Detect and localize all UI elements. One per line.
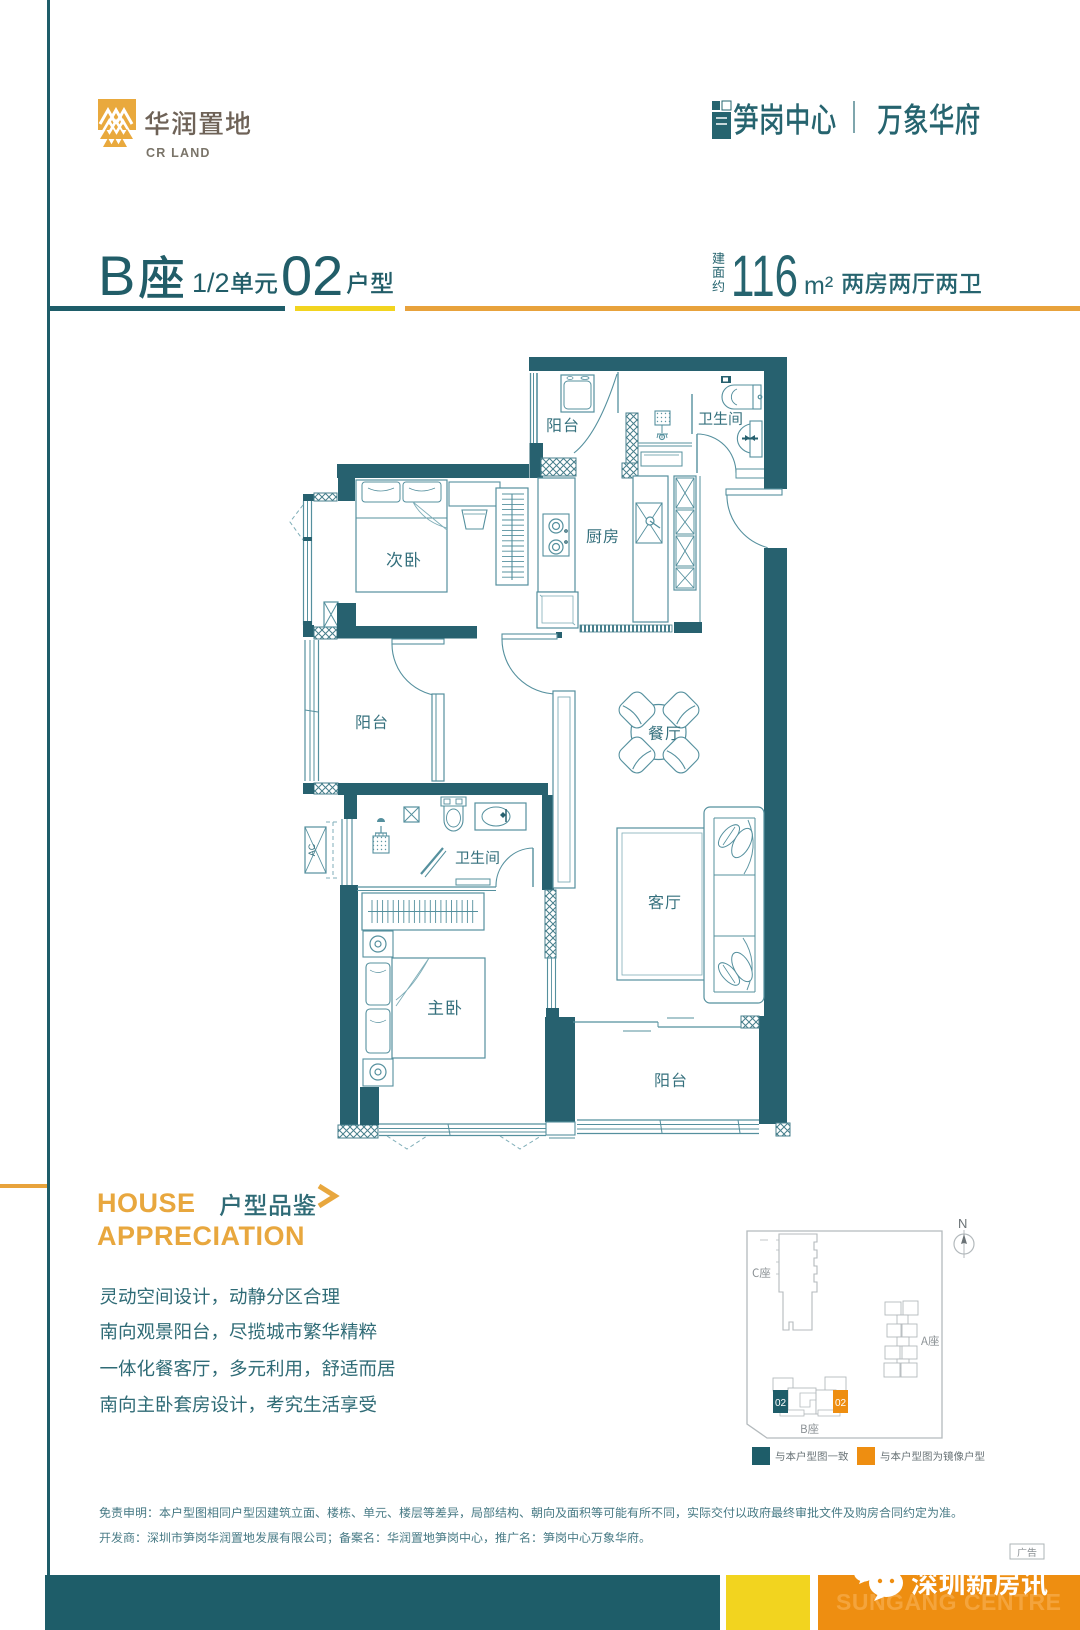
svg-text:HOUSE: HOUSE xyxy=(97,1188,196,1218)
svg-text:AC: AC xyxy=(307,843,317,856)
svg-text:1/2: 1/2 xyxy=(192,268,230,298)
svg-text:m²: m² xyxy=(804,272,833,300)
svg-text:B: B xyxy=(98,244,135,307)
svg-text:CR LAND: CR LAND xyxy=(146,146,211,160)
svg-text:APPRECIATION: APPRECIATION xyxy=(97,1221,305,1251)
svg-text:02: 02 xyxy=(775,1398,787,1409)
svg-text:02: 02 xyxy=(835,1398,847,1409)
svg-text:02: 02 xyxy=(281,244,343,307)
svg-text:N: N xyxy=(958,1216,967,1231)
svg-text:116: 116 xyxy=(731,244,798,309)
